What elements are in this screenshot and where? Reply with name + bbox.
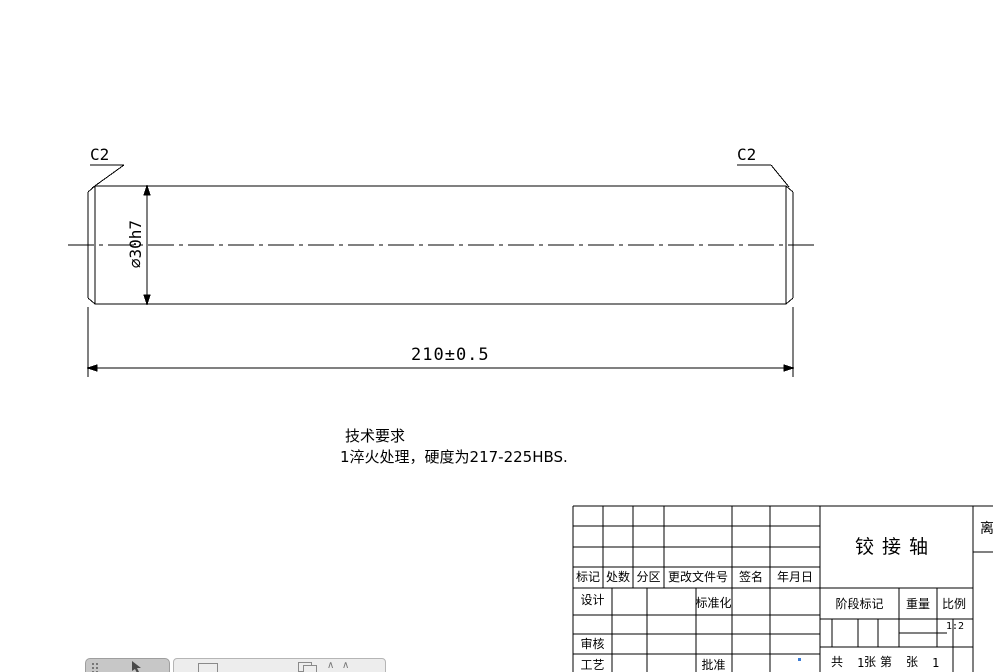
sheet-total-label: 共 <box>831 656 843 668</box>
window-tool-icon-back[interactable] <box>303 665 317 672</box>
clipped-right-cell-text: 离 <box>980 522 993 536</box>
capture-toolbar-left-segment[interactable] <box>85 658 170 672</box>
sheet-number-value: 1 <box>932 657 939 669</box>
titleblock-label-audit: 审核 <box>573 638 612 650</box>
tech-requirements-title: 技术要求 <box>345 429 405 444</box>
rectangle-tool-icon[interactable] <box>198 663 218 672</box>
drawing-lines <box>0 0 993 672</box>
titleblock-header-docno: 更改文件号 <box>664 571 732 583</box>
length-dimension: 210±0.5 <box>411 347 490 364</box>
titleblock-label-approve: 批准 <box>694 659 733 671</box>
sheet-number-label: 第 <box>880 656 892 668</box>
sheet-number-unit: 张 <box>906 656 918 668</box>
chamfer-label-left: C2 <box>90 147 109 163</box>
stage-mark-label: 阶段标记 <box>820 598 899 610</box>
scale-label: 比例 <box>937 598 971 610</box>
titleblock-grid <box>573 506 993 672</box>
titleblock-header-zone: 分区 <box>633 571 664 583</box>
titleblock-header-mark: 标记 <box>573 571 603 583</box>
titleblock-label-design: 设计 <box>573 594 612 606</box>
part-name: 铰接轴 <box>820 538 971 557</box>
chevron-up-icon[interactable]: ∧ <box>327 660 334 671</box>
grid-handle-icon[interactable] <box>92 663 94 665</box>
chevron-up-icon[interactable]: ∧ <box>342 660 349 671</box>
scale-value: 1:2 <box>946 622 964 632</box>
cursor-position-dot <box>798 658 801 661</box>
screenshot-dim-overlay <box>0 0 993 16</box>
tech-requirements-line: 1淬火处理，硬度为217-225HBS. <box>340 450 568 465</box>
titleblock-label-standardization: 标准化 <box>694 597 733 609</box>
titleblock-header-signature: 签名 <box>732 571 770 583</box>
titleblock-header-count: 处数 <box>603 571 633 583</box>
chamfer-label-right: C2 <box>737 147 756 163</box>
titleblock-header-date: 年月日 <box>770 571 820 583</box>
capture-toolbar-right-segment[interactable]: ∧ ∧ <box>173 658 386 672</box>
cad-drawing-screenshot: C2 C2 ∅30h7 210±0.5 技术要求 1淬火处理，硬度为217-22… <box>0 0 993 672</box>
weight-label: 重量 <box>899 598 937 610</box>
capture-toolbar[interactable]: ∧ ∧ <box>85 658 386 672</box>
cursor-icon[interactable] <box>132 661 142 672</box>
titleblock-label-craft: 工艺 <box>573 659 612 671</box>
sheet-total-unit: 张 <box>864 656 876 668</box>
diameter-dimension: ∅30h7 <box>128 199 144 289</box>
